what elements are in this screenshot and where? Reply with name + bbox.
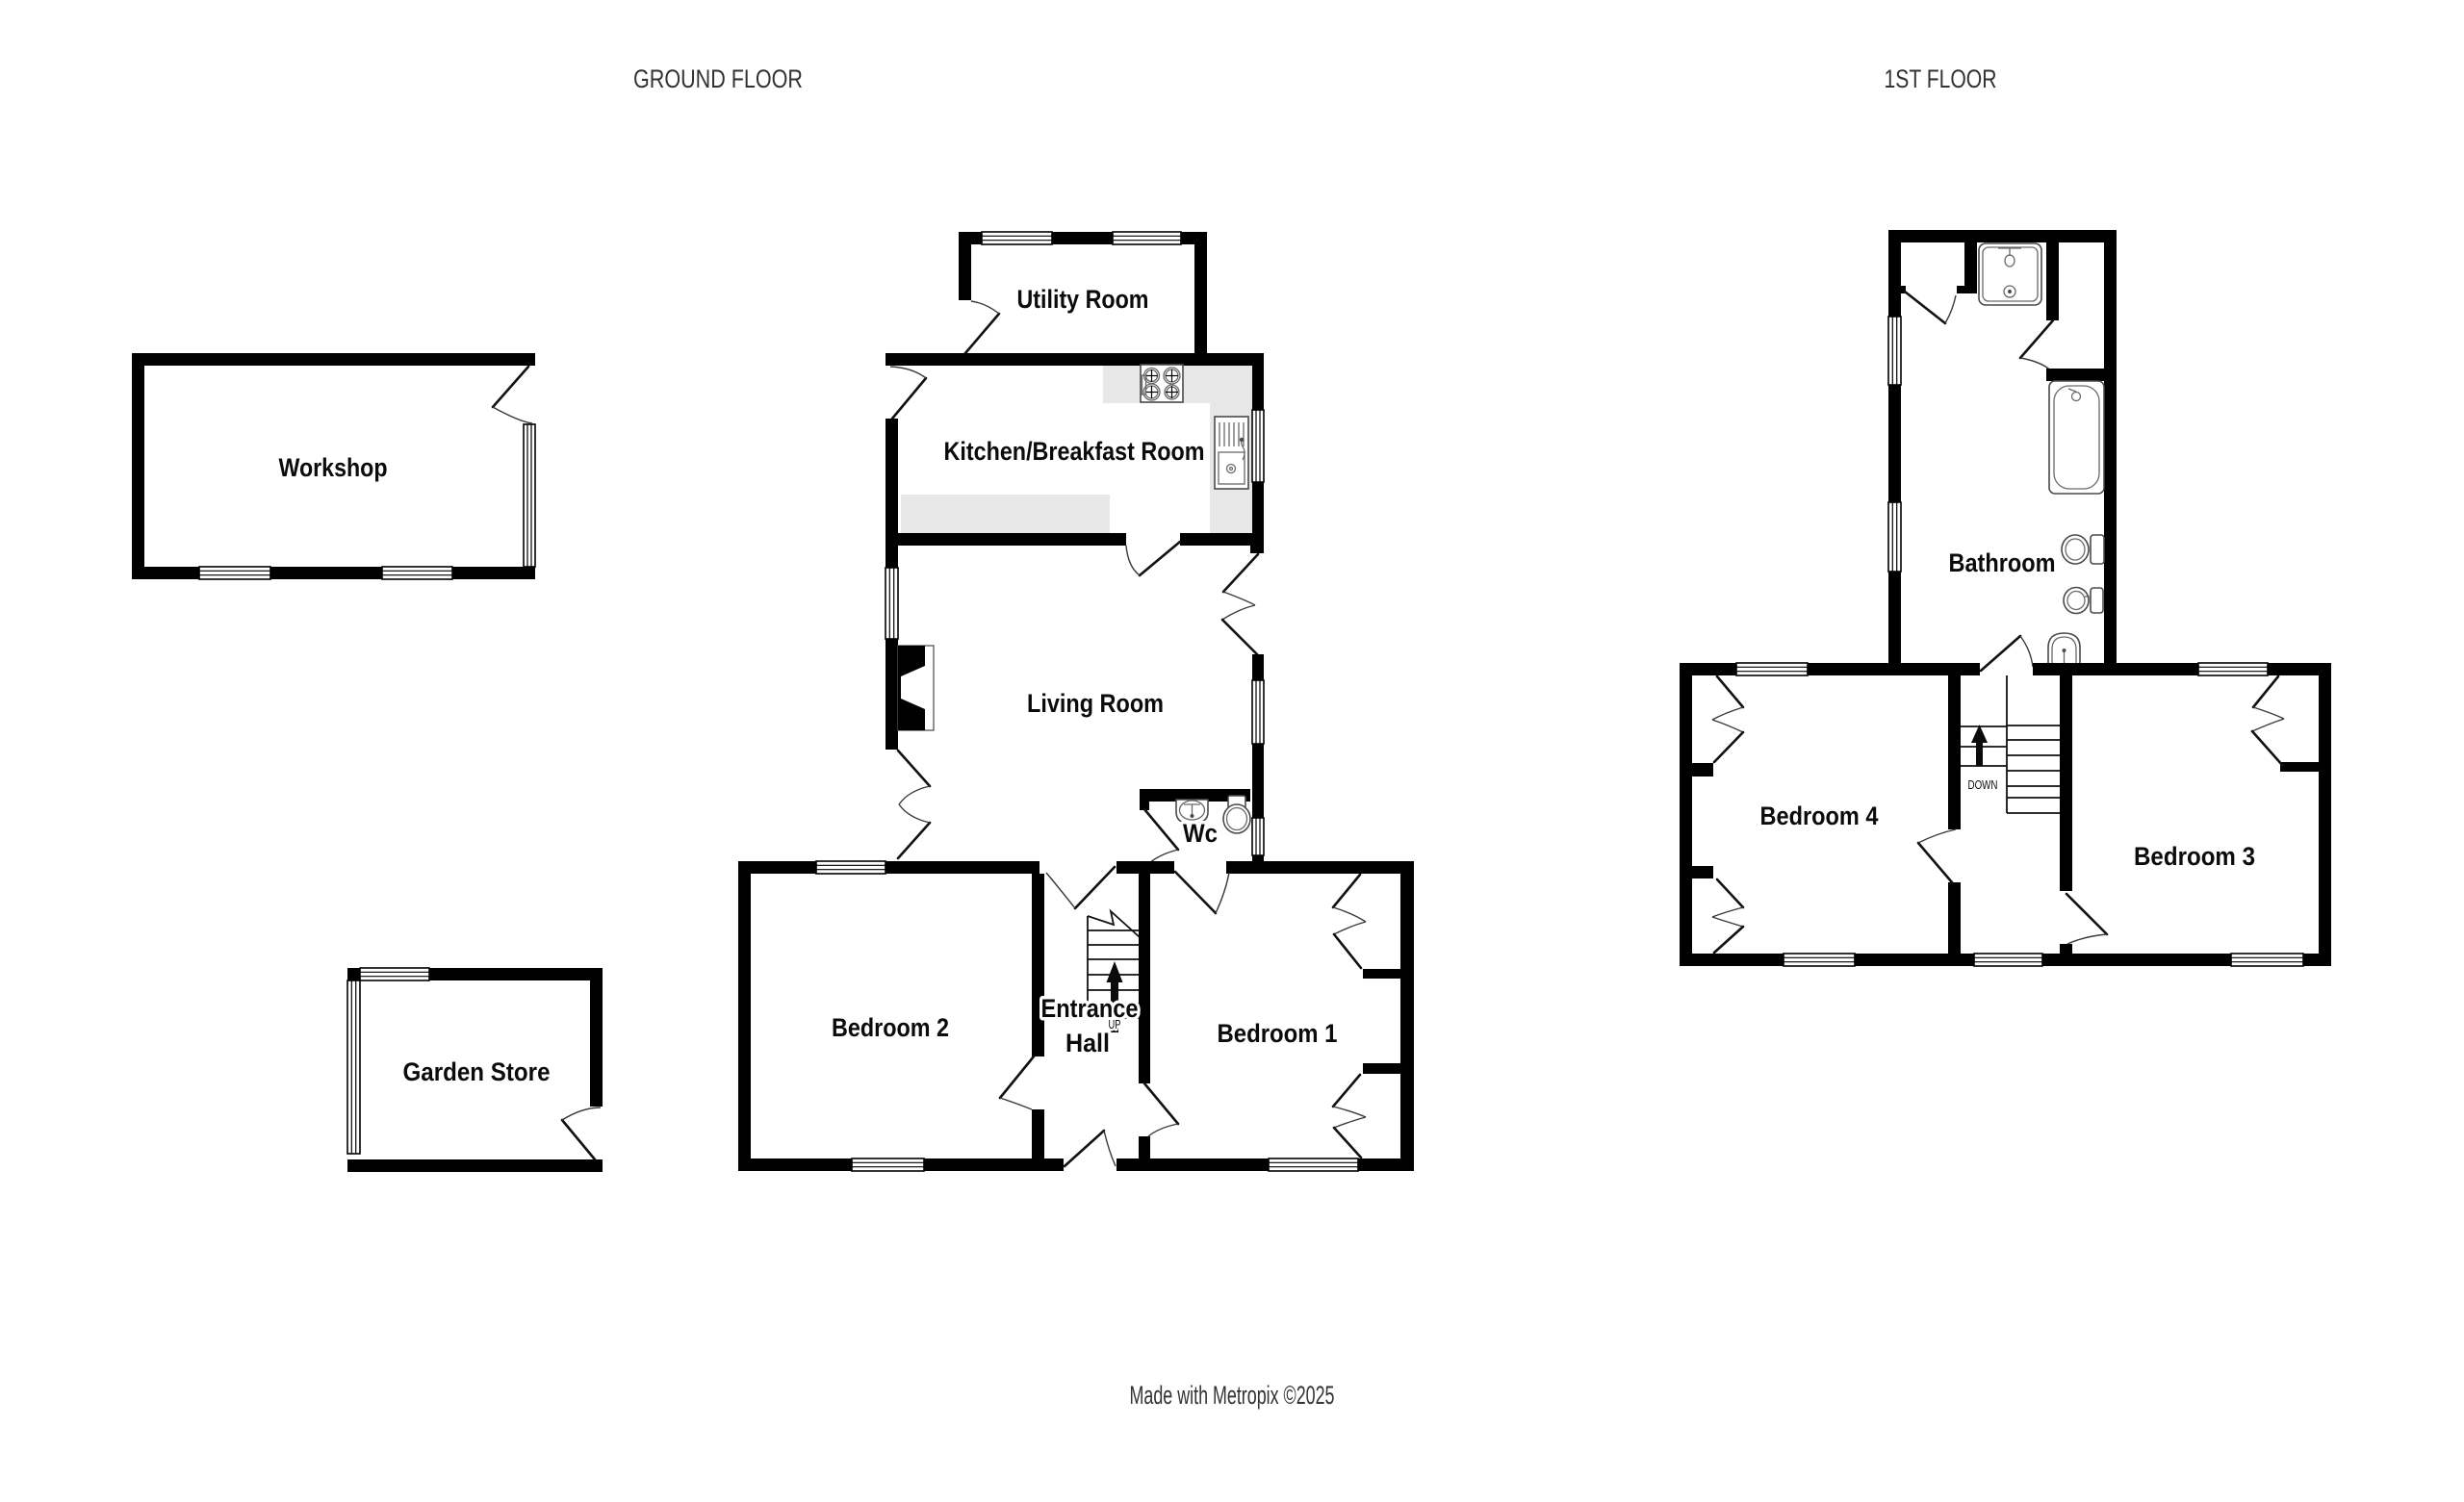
svg-text:Living Room: Living Room bbox=[1027, 689, 1164, 718]
svg-text:Bedroom 2: Bedroom 2 bbox=[832, 1013, 949, 1042]
svg-text:Kitchen/Breakfast Room: Kitchen/Breakfast Room bbox=[944, 437, 1205, 466]
svg-text:UP: UP bbox=[1109, 1017, 1121, 1031]
svg-text:Workshop: Workshop bbox=[279, 453, 388, 482]
svg-text:DOWN: DOWN bbox=[1968, 777, 1998, 792]
svg-text:Garden Store: Garden Store bbox=[403, 1057, 551, 1086]
svg-text:Bedroom 4: Bedroom 4 bbox=[1760, 802, 1879, 830]
svg-text:Made with Metropix ©2025: Made with Metropix ©2025 bbox=[1130, 1381, 1335, 1410]
svg-text:Bedroom 1: Bedroom 1 bbox=[1218, 1019, 1338, 1048]
svg-text:Bathroom: Bathroom bbox=[1949, 548, 2056, 577]
svg-text:Utility Room: Utility Room bbox=[1017, 285, 1149, 314]
svg-text:Wc: Wc bbox=[1183, 819, 1218, 848]
svg-text:Entrance: Entrance bbox=[1041, 994, 1139, 1023]
svg-text:GROUND FLOOR: GROUND FLOOR bbox=[633, 64, 803, 93]
svg-text:Hall: Hall bbox=[1065, 1029, 1110, 1057]
svg-text:1ST FLOOR: 1ST FLOOR bbox=[1885, 64, 1997, 93]
svg-text:Bedroom 3: Bedroom 3 bbox=[2134, 842, 2255, 871]
